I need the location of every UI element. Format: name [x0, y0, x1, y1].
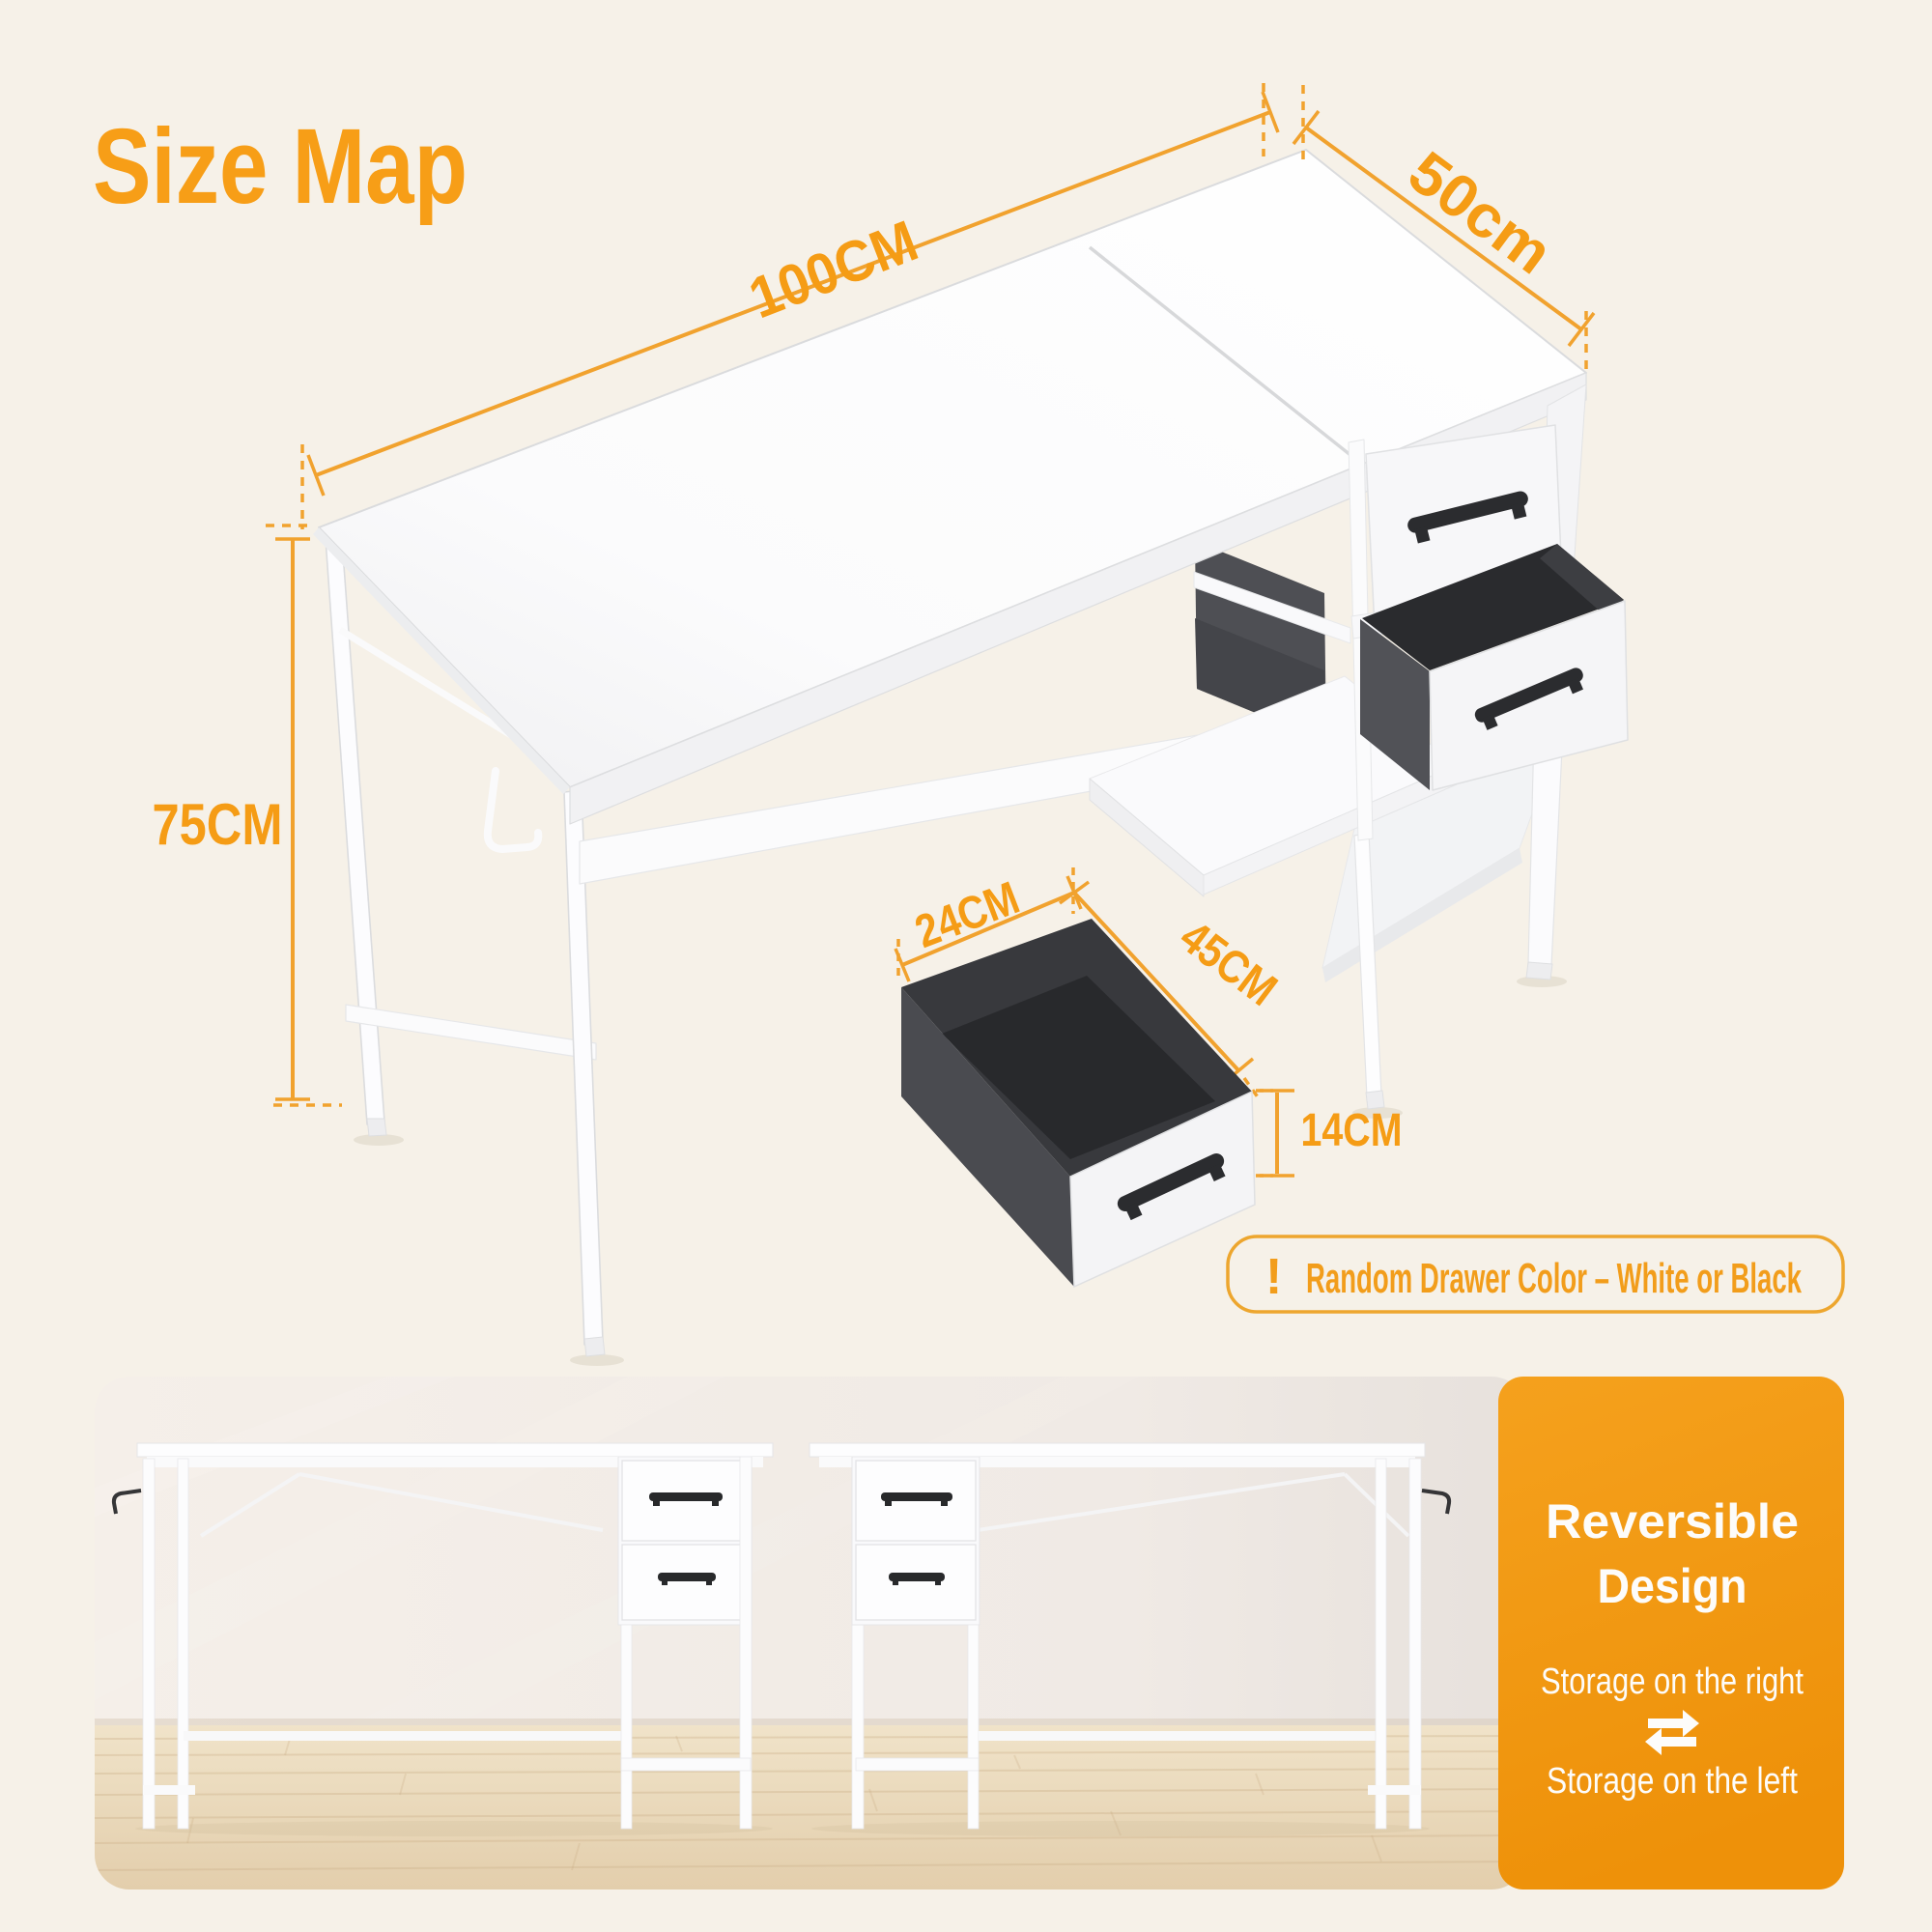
- svg-text:Random Drawer Color – White or: Random Drawer Color – White or Black: [1306, 1255, 1802, 1302]
- svg-text:!: !: [1265, 1249, 1282, 1305]
- svg-text:Reversible: Reversible: [1546, 1494, 1799, 1548]
- svg-text:14CM: 14CM: [1301, 1105, 1403, 1156]
- svg-text:Storage on the right: Storage on the right: [1541, 1662, 1804, 1702]
- svg-text:Storage on the left: Storage on the left: [1547, 1761, 1798, 1802]
- svg-text:75CM: 75CM: [153, 792, 283, 857]
- svg-text:Design: Design: [1598, 1559, 1747, 1613]
- svg-text:Size Map: Size Map: [93, 107, 468, 226]
